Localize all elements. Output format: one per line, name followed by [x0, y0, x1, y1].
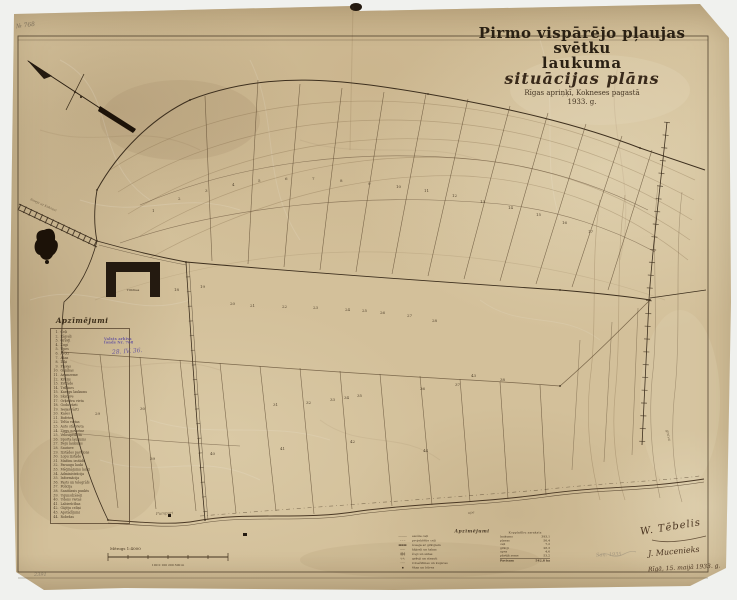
legend-item: 44.Robežas: [53, 515, 128, 519]
parcel-number: 11: [424, 188, 429, 193]
parcel-number: 12: [452, 193, 458, 198]
paper-hole: [350, 3, 362, 11]
parcel-number: 8: [340, 178, 343, 183]
title-line4: Rīgas apriņķī, Kokneses pagastā: [448, 89, 716, 98]
parcel-number: 37: [455, 382, 461, 387]
scale-sublabel: 100 0 100 200 300 m: [152, 563, 185, 567]
title-block: Pirmo vispārējo pļaujas svētku laukuma s…: [448, 26, 716, 106]
title-line1: Pirmo vispārējo pļaujas svētku: [448, 26, 716, 56]
grandstand-label: Tribīnes: [127, 288, 140, 292]
parcel-number: 9: [368, 181, 371, 186]
parcel-number: 42: [350, 439, 356, 444]
highway-hatching: [19, 207, 97, 244]
parcel-number: 40: [210, 451, 216, 456]
area-table-heading: Kopplatību saraksts: [500, 531, 550, 535]
parcel-number: 2: [178, 196, 181, 201]
parcel-number: 20: [230, 301, 236, 306]
parcel-number: 3: [205, 188, 208, 193]
parcel-number: 22: [282, 304, 288, 309]
parcel-number: 44: [423, 448, 429, 453]
parcel-number: 26: [380, 310, 386, 315]
map-label: Pumpuri: [155, 510, 174, 516]
parcel-number: 18: [174, 287, 180, 292]
grandstand: Tribīnes: [106, 262, 160, 297]
area-table: Kopplatību saraksts laukums393,1pļavas56…: [500, 531, 550, 594]
stamp-line2: fonds Nr. 768: [104, 341, 170, 345]
parcel-number: 24: [345, 307, 351, 312]
parcel-number: 19: [200, 284, 206, 289]
legend-items: 1.Ceļi2.Kājceļi3.Grāvji4.Žogi5.Upes6.Avo…: [51, 329, 129, 523]
parcel-number: 7: [312, 176, 315, 181]
parcel-number: 14: [508, 205, 514, 210]
stream: [108, 476, 704, 526]
parcel-number: 25: [362, 308, 368, 313]
scanned-map-sheet: Tribīnes Mērogs 1:4000 100 0 100 200 300…: [0, 0, 737, 600]
parcel-number: 43: [471, 373, 477, 378]
parcel-number: 33: [330, 397, 336, 402]
map-label: šoseja uz Koknesi: [30, 197, 58, 212]
parcel-number: 13: [480, 199, 486, 204]
parcel-number: 35: [357, 393, 363, 398]
title-line2: laukuma: [448, 56, 716, 70]
road-ticks: [187, 262, 206, 520]
buildings: [168, 514, 247, 536]
legend-box: 1.Ceļi2.Kājceļi3.Grāvji4.Žogi5.Upes6.Avo…: [50, 328, 130, 524]
parcel-number: 28: [432, 318, 438, 323]
parcel-number: 21: [250, 303, 255, 308]
area-table-total: Pavisam 542,8 ha: [500, 558, 550, 562]
right-pencil-note: Saņ. 1935: [596, 552, 622, 559]
area-table-row: pārējā zeme53,2: [500, 554, 550, 558]
parcel-number: 23: [313, 305, 319, 310]
title-line5: 1933. g.: [448, 98, 716, 106]
parcel-number: 32: [306, 400, 312, 405]
parcel-number: 4: [232, 182, 235, 187]
parcel-number: 41: [280, 446, 285, 451]
total-label: Pavisam: [500, 559, 535, 563]
ink-blot: [35, 229, 58, 264]
title-line3: situācijas plāns: [448, 70, 716, 87]
parcel-number: 10: [396, 184, 402, 189]
total-value: 542,8 ha: [535, 559, 550, 563]
parcel-number: 1: [152, 208, 155, 213]
signature-flourish: [652, 536, 706, 542]
parcel-number: 36: [420, 386, 426, 391]
parcel-number: 17: [588, 229, 594, 234]
parcel-number: 6: [285, 176, 288, 181]
parcel-number: 31: [273, 402, 278, 407]
bottom-left-pencil-note: 2391: [34, 572, 47, 578]
parcel-number: 38: [500, 377, 506, 382]
scale-label: Mērogs 1:4000: [110, 546, 141, 551]
parcel-number: 15: [536, 212, 542, 217]
parcel-number: 16: [562, 220, 568, 225]
parcel-number: 27: [407, 313, 413, 318]
scale-bar: Mērogs 1:4000 100 0 100 200 300 m: [108, 546, 228, 567]
map-label: upe: [468, 510, 475, 515]
boundary-dashes: [200, 476, 700, 516]
parcel-number: 30: [140, 406, 146, 411]
parcel-number: 34: [344, 395, 350, 400]
legend-heading: Apzīmējumi: [56, 316, 109, 325]
area-table-rows: laukums393,1pļavas56,4ceļi7,2grāvji28,3u…: [500, 535, 550, 558]
parcel-number: 39: [150, 456, 156, 461]
